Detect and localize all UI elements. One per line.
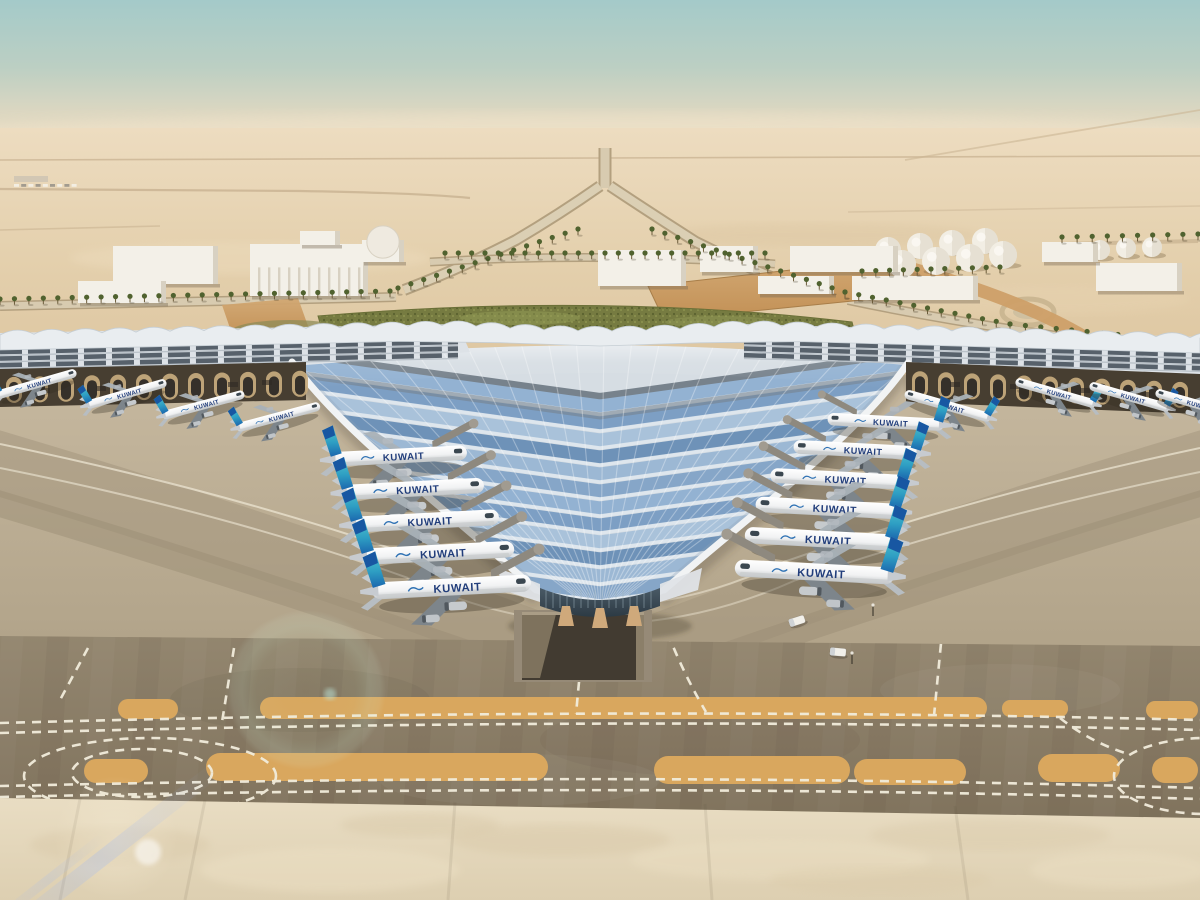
- palm-tree: [970, 265, 975, 270]
- engine: [448, 601, 468, 611]
- palm-tree: [749, 250, 754, 255]
- palm-tree: [956, 266, 961, 271]
- warehouse-building: [1096, 263, 1184, 295]
- palm-tree: [408, 281, 413, 286]
- palm-tree: [736, 250, 741, 255]
- palm-tree: [1059, 234, 1064, 239]
- palm-tree: [243, 291, 248, 296]
- cockpit: [454, 448, 463, 453]
- palm-tree: [127, 294, 132, 299]
- palm-tree: [859, 268, 864, 273]
- palm-tree: [675, 235, 680, 240]
- cockpit: [831, 416, 838, 420]
- palm-tree: [830, 285, 835, 290]
- palm-tree: [1120, 233, 1125, 238]
- palm-tree: [156, 293, 161, 298]
- palm-tree: [524, 243, 529, 248]
- palm-tree: [980, 316, 985, 321]
- cockpit: [470, 481, 479, 486]
- engine: [425, 614, 440, 622]
- warehouse-building: [1042, 242, 1100, 266]
- palm-tree: [460, 264, 465, 269]
- palm-tree: [1007, 321, 1012, 326]
- palm-tree: [842, 289, 847, 294]
- cockpit: [485, 513, 494, 518]
- palm-tree: [456, 250, 461, 255]
- palm-tree: [629, 250, 634, 255]
- airline-label: KUWAIT: [420, 547, 467, 561]
- warehouse-building: [78, 281, 168, 307]
- palm-tree: [200, 292, 205, 297]
- palm-tree: [1054, 326, 1059, 331]
- warehouse-building: [790, 246, 900, 276]
- palm-tree: [1075, 234, 1080, 239]
- palm-tree: [1023, 323, 1028, 328]
- palm-tree: [1105, 233, 1110, 238]
- palm-tree: [576, 250, 581, 255]
- warehouse-building: [758, 276, 836, 298]
- palm-tree: [701, 243, 706, 248]
- palm-tree: [509, 250, 514, 255]
- palm-tree: [984, 265, 989, 270]
- palm-tree: [447, 269, 452, 274]
- palm-tree: [1165, 232, 1170, 237]
- palm-tree: [762, 250, 767, 255]
- palm-tree: [804, 277, 809, 282]
- distant-car: [43, 184, 48, 187]
- distant-car: [14, 184, 19, 187]
- palm-tree: [84, 295, 89, 300]
- distant-parking-structure: [14, 176, 48, 182]
- palm-tree: [915, 267, 920, 272]
- palm-tree: [482, 250, 487, 255]
- palm-tree: [41, 296, 46, 301]
- palm-tree: [887, 268, 892, 273]
- palm-tree: [373, 289, 378, 294]
- palm-tree: [536, 250, 541, 255]
- palm-tree: [496, 250, 501, 255]
- cockpit: [500, 545, 510, 551]
- palm-tree: [656, 250, 661, 255]
- palm-tree: [752, 260, 757, 265]
- palm-tree: [99, 294, 104, 299]
- palm-tree: [942, 266, 947, 271]
- airline-label: KUWAIT: [433, 581, 482, 596]
- palm-tree: [649, 226, 654, 231]
- palm-tree: [1180, 232, 1185, 237]
- palm-tree: [1090, 234, 1095, 239]
- palm-tree: [1150, 232, 1155, 237]
- palm-tree: [395, 285, 400, 290]
- cockpit: [760, 500, 769, 505]
- distant-car: [64, 184, 69, 187]
- cockpit: [798, 443, 806, 448]
- engine: [826, 599, 841, 607]
- palm-tree: [778, 268, 783, 273]
- airline-label: KUWAIT: [383, 451, 425, 464]
- palm-tree: [473, 260, 478, 265]
- airline-label: KUWAIT: [407, 515, 453, 529]
- palm-tree: [469, 250, 474, 255]
- palm-tree: [884, 297, 889, 302]
- palm-tree: [669, 250, 674, 255]
- palm-tree: [359, 289, 364, 294]
- palm-tree: [870, 295, 875, 300]
- palm-tree: [997, 264, 1002, 269]
- airline-label: KUWAIT: [797, 567, 846, 582]
- palm-tree: [642, 250, 647, 255]
- palm-tree: [257, 291, 262, 296]
- palm-tree: [562, 250, 567, 255]
- palm-tree: [817, 281, 822, 286]
- palm-tree: [70, 295, 75, 300]
- distant-parked-cars: [14, 184, 77, 187]
- palm-tree: [939, 308, 944, 313]
- palm-tree: [113, 294, 118, 299]
- palm-tree: [682, 250, 687, 255]
- cockpit: [516, 578, 526, 584]
- palm-tree: [286, 290, 291, 295]
- warehouse-building: [300, 231, 342, 249]
- palm-tree: [589, 250, 594, 255]
- palm-tree: [722, 250, 727, 255]
- palm-tree: [550, 235, 555, 240]
- palm-tree: [791, 273, 796, 278]
- palm-tree: [12, 296, 17, 301]
- palm-tree: [229, 292, 234, 297]
- palm-tree: [873, 268, 878, 273]
- palm-tree: [928, 266, 933, 271]
- palm-tree: [142, 293, 147, 298]
- palm-tree: [185, 293, 190, 298]
- palm-tree: [387, 288, 392, 293]
- palm-tree: [171, 293, 176, 298]
- warehouse-building: [250, 244, 370, 300]
- palm-tree: [549, 250, 554, 255]
- palm-tree: [214, 292, 219, 297]
- airline-label: KUWAIT: [873, 418, 909, 429]
- palm-tree: [575, 226, 580, 231]
- palm-tree: [696, 250, 701, 255]
- cockpit: [740, 563, 750, 569]
- palm-tree: [330, 290, 335, 295]
- palm-tree: [301, 290, 306, 295]
- scene-canvas: KUWAITKUWAITKUWAITKUWAITKUWAITKUWAITKUWA…: [0, 0, 1200, 900]
- palm-tree: [1135, 233, 1140, 238]
- distant-car: [57, 184, 62, 187]
- palm-tree: [897, 300, 902, 305]
- airline-label: KUWAIT: [396, 484, 440, 497]
- palm-tree: [765, 264, 770, 269]
- palm-tree: [537, 239, 542, 244]
- palm-tree: [442, 250, 447, 255]
- palm-tree: [616, 250, 621, 255]
- distant-car: [50, 184, 55, 187]
- distant-car: [36, 184, 41, 187]
- palm-tree: [602, 250, 607, 255]
- palm-tree: [662, 231, 667, 236]
- palm-tree: [434, 273, 439, 278]
- distant-car: [21, 184, 26, 187]
- palm-tree: [709, 250, 714, 255]
- palm-tree: [421, 277, 426, 282]
- palm-tree: [344, 289, 349, 294]
- palm-tree: [966, 313, 971, 318]
- palm-tree: [714, 247, 719, 252]
- palm-tree: [911, 303, 916, 308]
- palm-tree: [272, 291, 277, 296]
- palm-tree: [688, 239, 693, 244]
- warehouse-building: [598, 250, 688, 290]
- palm-tree: [856, 292, 861, 297]
- palm-tree: [952, 311, 957, 316]
- cockpit: [775, 471, 784, 476]
- palm-tree: [563, 231, 568, 236]
- palm-tree: [26, 296, 31, 301]
- distant-car: [72, 184, 77, 187]
- palm-tree: [901, 267, 906, 272]
- palm-tree: [925, 305, 930, 310]
- airport-aerial-rendering: KUWAITKUWAITKUWAITKUWAITKUWAITKUWAITKUWA…: [0, 0, 1200, 900]
- engine: [799, 586, 819, 596]
- dome-structure: [367, 226, 399, 258]
- palm-tree: [522, 250, 527, 255]
- distant-car: [28, 184, 33, 187]
- palm-tree: [994, 319, 999, 324]
- cockpit: [750, 531, 760, 537]
- palm-tree: [55, 295, 60, 300]
- palm-tree: [315, 290, 320, 295]
